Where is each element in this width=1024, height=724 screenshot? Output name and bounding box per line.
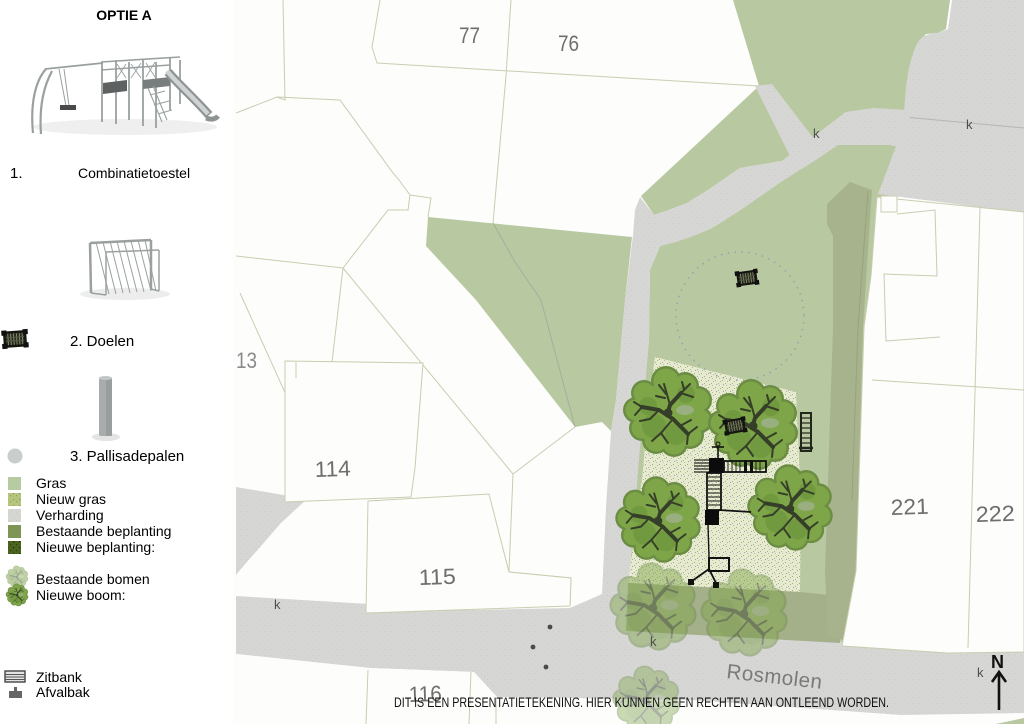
- svg-text:222: 222: [975, 501, 1015, 527]
- svg-text:OPTIE A: OPTIE A: [96, 7, 152, 23]
- svg-text:k: k: [274, 597, 281, 612]
- svg-text:Zitbank: Zitbank: [36, 669, 83, 685]
- svg-text:Combinatietoestel: Combinatietoestel: [78, 165, 190, 181]
- svg-text:1.: 1.: [10, 165, 23, 182]
- svg-text:13: 13: [236, 348, 257, 373]
- svg-text:k: k: [650, 634, 657, 649]
- svg-text:Afvalbak: Afvalbak: [36, 684, 91, 700]
- svg-text:115: 115: [418, 564, 456, 590]
- svg-text:Bestaande bomen: Bestaande bomen: [36, 571, 150, 587]
- svg-text:2. Doelen: 2. Doelen: [70, 333, 134, 350]
- svg-text:221: 221: [890, 494, 929, 520]
- svg-text:Gras: Gras: [36, 475, 66, 491]
- svg-text:76: 76: [558, 31, 579, 56]
- svg-text:k: k: [813, 126, 820, 141]
- svg-text:DIT IS EEN PRESENTATIETEKENING: DIT IS EEN PRESENTATIETEKENING. HIER KUN…: [394, 695, 889, 710]
- svg-text:3. Pallisadepalen: 3. Pallisadepalen: [70, 448, 184, 465]
- svg-text:Nieuwe boom:: Nieuwe boom:: [36, 587, 126, 603]
- svg-text:Nieuw gras: Nieuw gras: [36, 491, 106, 507]
- svg-text:Bestaande beplanting: Bestaande beplanting: [36, 523, 171, 539]
- svg-text:Nieuwe beplanting:: Nieuwe beplanting:: [36, 539, 155, 555]
- svg-text:k: k: [966, 117, 973, 132]
- svg-text:Verharding: Verharding: [36, 507, 104, 523]
- svg-text:N: N: [991, 652, 1004, 672]
- svg-text:77: 77: [459, 23, 480, 48]
- svg-text:114: 114: [314, 456, 351, 482]
- svg-text:k: k: [977, 665, 984, 680]
